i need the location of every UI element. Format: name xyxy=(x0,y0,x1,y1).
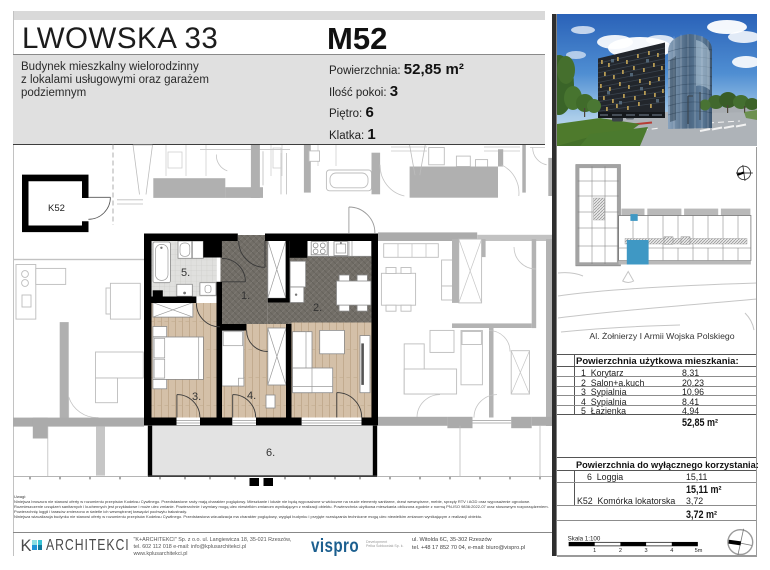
svg-text:1: 1 xyxy=(593,548,596,554)
svg-text:6.: 6. xyxy=(266,447,275,459)
svg-text:2: 2 xyxy=(619,548,622,554)
svg-text:Al. Żołnierzy I Armii Wojska P: Al. Żołnierzy I Armii Wojska Polskiego xyxy=(589,331,734,341)
svg-text:2.: 2. xyxy=(313,302,322,314)
svg-text:K52: K52 xyxy=(48,203,65,214)
svg-text:Skala 1:100: Skala 1:100 xyxy=(568,536,601,543)
svg-text:5.: 5. xyxy=(181,267,190,279)
svg-text:5m: 5m xyxy=(695,548,703,554)
svg-text:4: 4 xyxy=(670,548,673,554)
svg-text:1.: 1. xyxy=(241,290,250,302)
svg-text:3: 3 xyxy=(645,548,648,554)
